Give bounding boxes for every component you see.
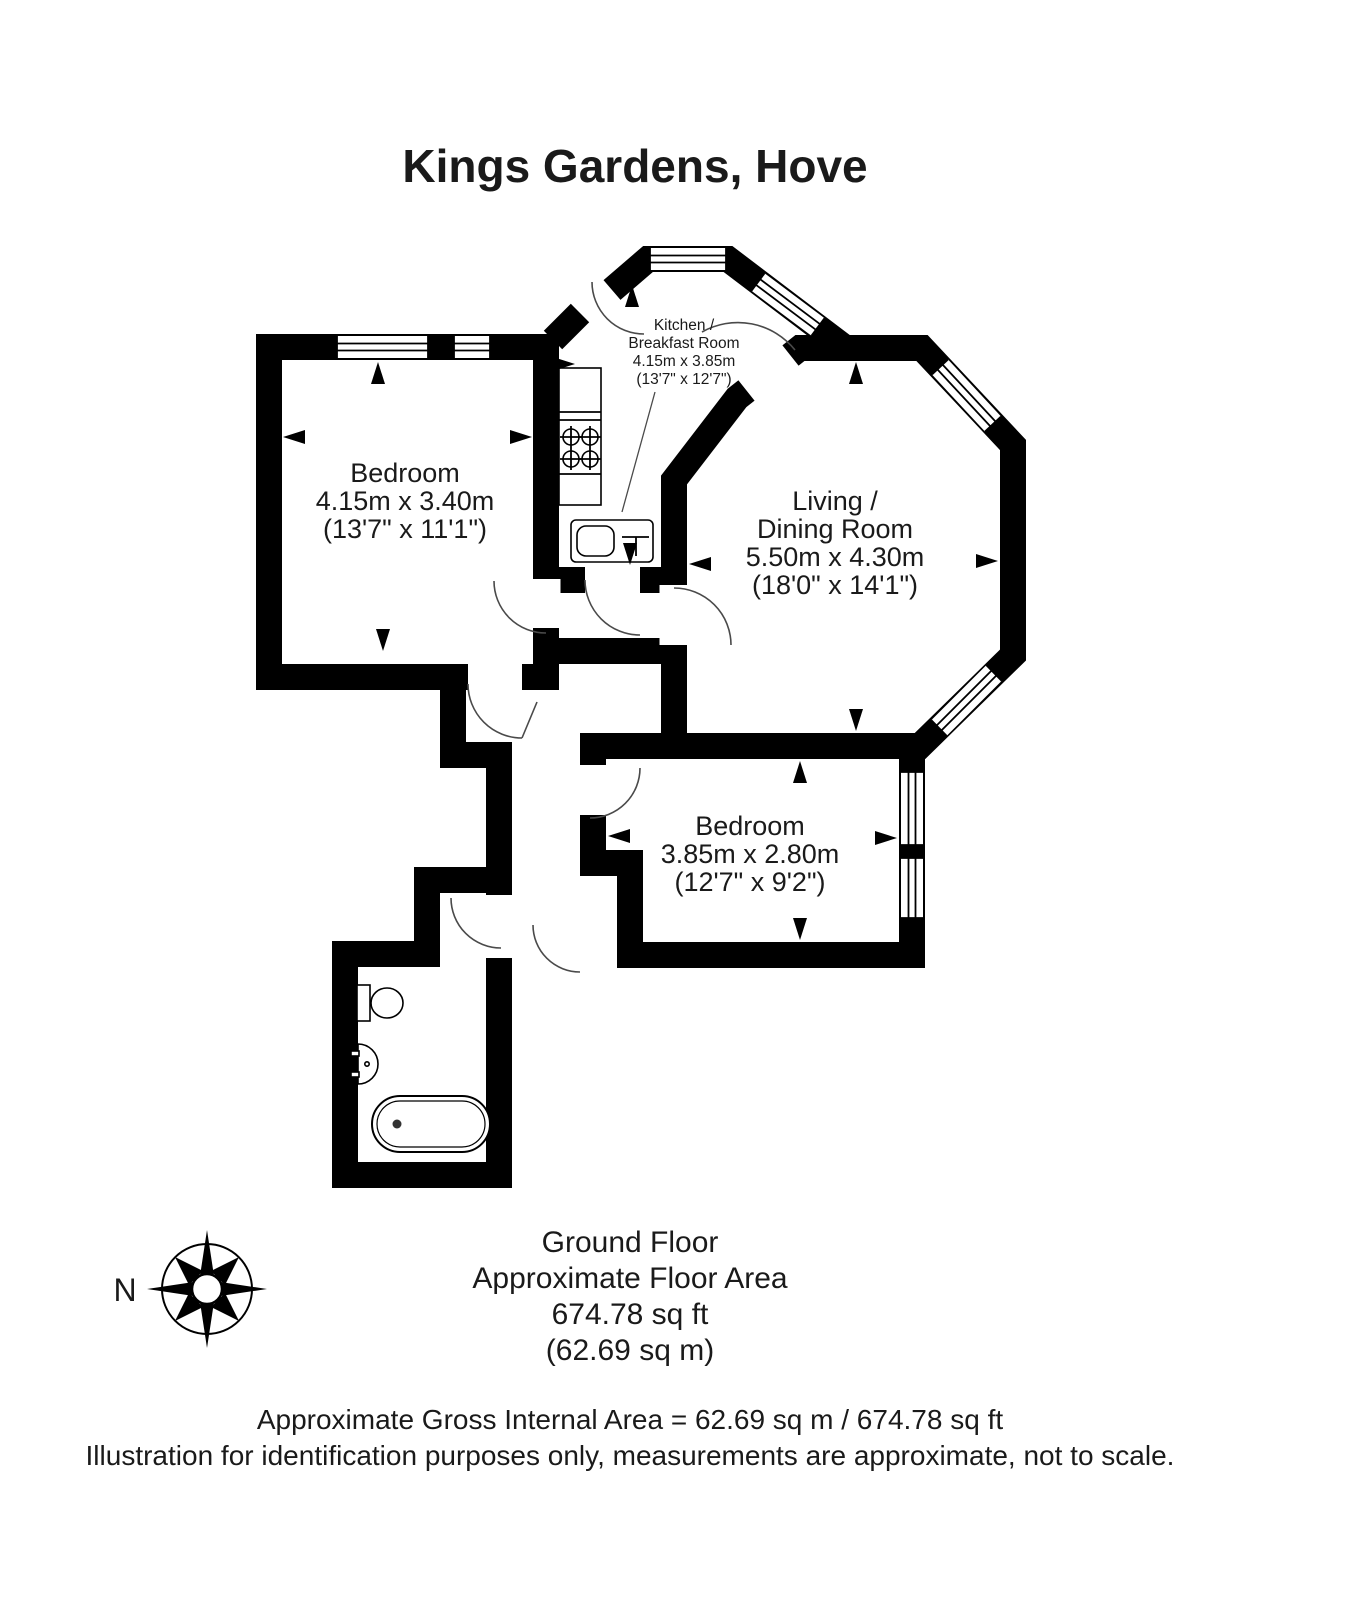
kitchen-name-line1: Kitchen / — [654, 317, 715, 334]
living-size-metric: 5.50m x 4.30m — [746, 542, 925, 572]
kitchen-label-leader — [622, 392, 655, 512]
bedroom-2-size-metric: 3.85m x 2.80m — [661, 839, 840, 869]
bedroom-1-window-1 — [337, 336, 428, 358]
area-sqm: (62.69 sq m) — [546, 1334, 714, 1367]
floor-name: Ground Floor — [542, 1226, 719, 1259]
living-size-imperial: (18'0" x 14'1") — [752, 570, 918, 600]
hall-entrance-door-leaf — [522, 702, 537, 738]
floorplan-page: N Bedroom 4.15m x 3.40m (13'7" x 11'1") … — [0, 0, 1351, 1600]
kitchen-size-imperial: (13'7" x 12'7") — [636, 371, 731, 388]
kitchen-size-metric: 4.15m x 3.85m — [633, 353, 736, 370]
bedroom-2-name: Bedroom — [695, 811, 805, 841]
bedroom-1-size-metric: 4.15m x 3.40m — [316, 486, 495, 516]
bedroom-2-window-1 — [901, 772, 923, 845]
kitchen-fixtures — [559, 368, 653, 562]
page-title: Kings Gardens, Hove — [402, 140, 867, 192]
bedroom-2-window-2 — [901, 858, 923, 918]
hall-inner-door-arc — [533, 925, 580, 972]
kitchen-label: Kitchen / Breakfast Room 4.15m x 3.85m (… — [628, 317, 739, 388]
disclaimer-block: Approximate Gross Internal Area = 62.69 … — [86, 1404, 1175, 1471]
living-name-line1: Living / — [792, 486, 878, 516]
footer-block: Ground Floor Approximate Floor Area 674.… — [472, 1226, 787, 1367]
compass-north-label: N — [113, 1272, 136, 1308]
hall-entrance-door-arc — [468, 684, 522, 738]
bedroom-2-size-imperial: (12'7" x 9'2") — [674, 867, 825, 897]
kitchen-bay-window — [650, 248, 726, 270]
area-sqft: 674.78 sq ft — [552, 1298, 709, 1331]
walls — [269, 259, 1013, 1175]
hall-step-wall — [453, 677, 499, 880]
bedroom-1-name: Bedroom — [350, 458, 460, 488]
area-label: Approximate Floor Area — [472, 1262, 787, 1295]
bedroom-1-size-imperial: (13'7" x 11'1") — [323, 514, 487, 544]
floorplan-canvas: N Bedroom 4.15m x 3.40m (13'7" x 11'1") … — [0, 0, 1351, 1600]
bathtub-icon — [372, 1096, 490, 1152]
bedroom-1-window-2 — [454, 336, 490, 358]
disclaimer-line1: Approximate Gross Internal Area = 62.69 … — [257, 1404, 1004, 1435]
kitchen-name-line2: Breakfast Room — [628, 335, 739, 352]
sink-icon — [571, 520, 653, 562]
compass-rose: N — [113, 1230, 267, 1348]
disclaimer-line2: Illustration for identification purposes… — [86, 1440, 1175, 1471]
toilet-icon — [357, 985, 403, 1021]
kitchen-lobby-door-arc — [585, 580, 640, 635]
kitchen-entry-diagonal-wall — [553, 313, 580, 340]
living-name-line2: Dining Room — [757, 514, 913, 544]
